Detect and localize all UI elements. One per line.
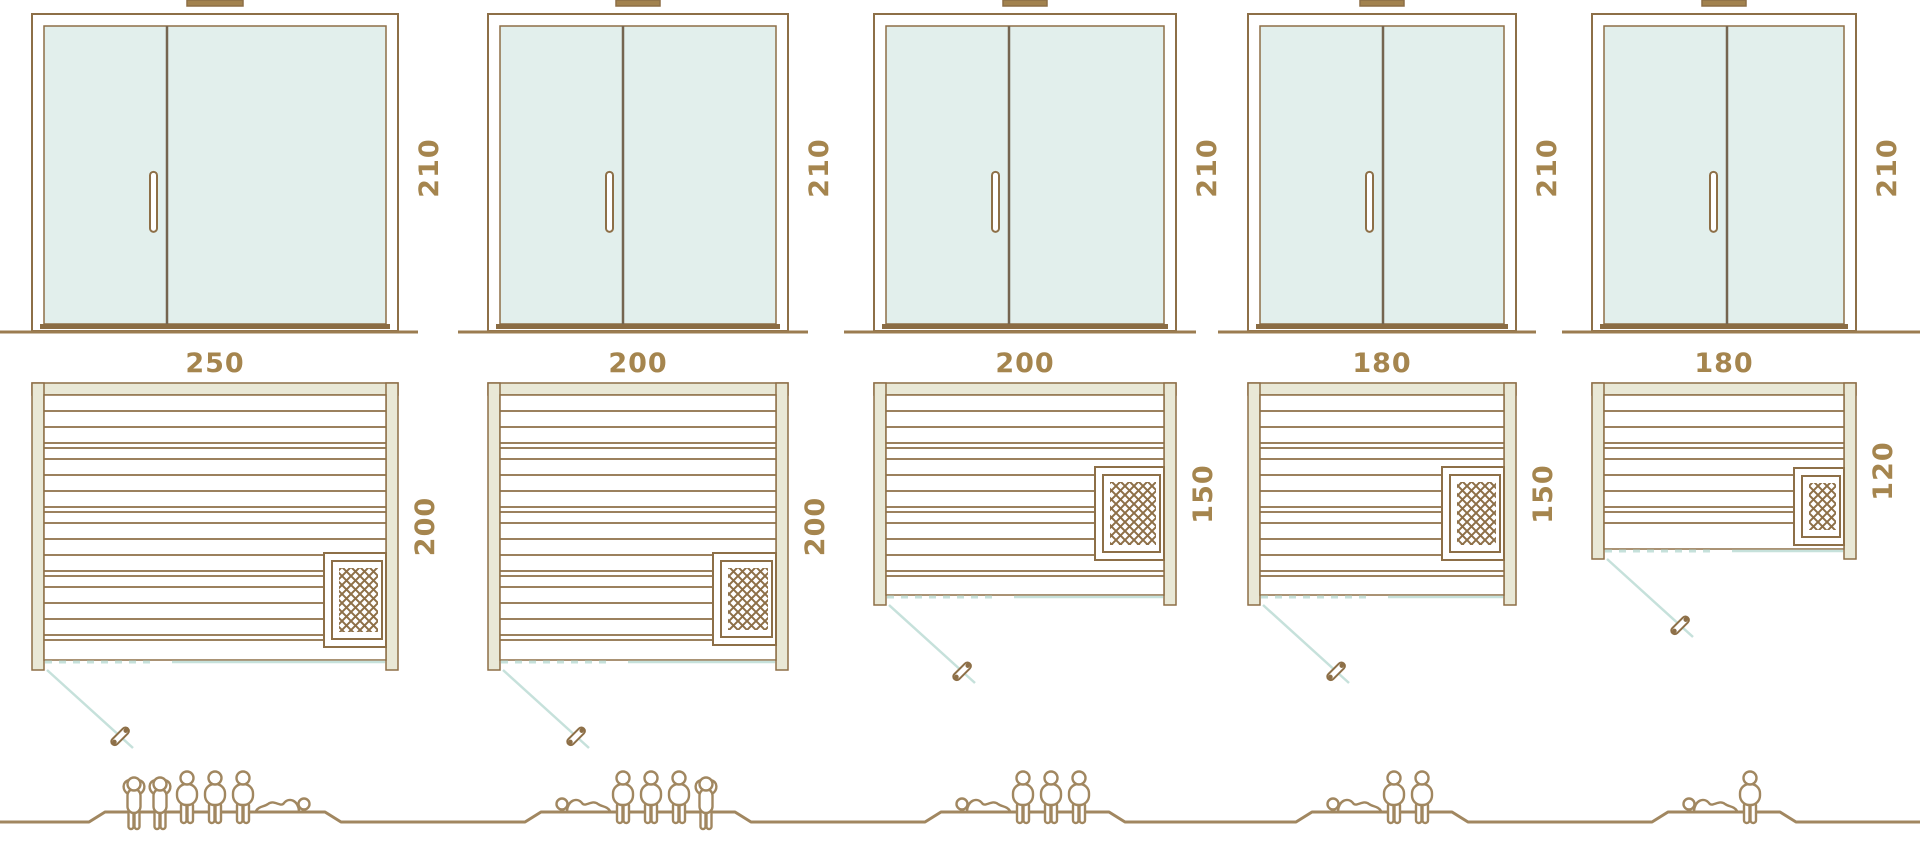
heater-icon — [713, 553, 776, 645]
plan-depth-dimension: 200 — [800, 497, 831, 556]
sauna-200x200-floor-plan — [488, 383, 788, 748]
people-ground-line — [0, 812, 1920, 822]
glass-door-panels — [1604, 26, 1844, 324]
door-threshold — [40, 324, 390, 329]
plan-left-wall — [488, 383, 500, 670]
plan-width-dimension: 180 — [1694, 348, 1753, 379]
roof-cap-icon — [187, 0, 243, 6]
glass-door-panels — [44, 26, 386, 324]
sauna-180x150-floor-plan — [1248, 383, 1516, 683]
plan-right-wall — [1164, 383, 1176, 605]
sauna-200x150-column: 210200150 — [844, 0, 1223, 683]
plan-right-wall — [386, 383, 398, 670]
plan-depth-dimension: 200 — [410, 497, 441, 556]
sauna-200x150-floor-plan — [874, 383, 1176, 683]
sauna-200x200-capacity-figures — [557, 772, 717, 830]
door-threshold — [1256, 324, 1508, 329]
door-handle-icon — [1710, 172, 1717, 232]
sauna-180x150-door-elevation — [1248, 0, 1516, 331]
sauna-180x150-capacity-figures — [1328, 772, 1433, 824]
plan-depth-dimension: 150 — [1528, 464, 1559, 523]
heater-icon — [1095, 467, 1164, 560]
sauna-180x150-column: 210180150 — [1218, 0, 1563, 683]
door-handle-icon — [606, 172, 613, 232]
plan-left-wall — [32, 383, 44, 670]
elevation-height-dimension: 210 — [1872, 138, 1903, 197]
plan-width-dimension: 180 — [1352, 348, 1411, 379]
sauna-250x200-capacity-figures — [124, 772, 310, 830]
door-handle-icon — [1366, 172, 1373, 232]
sauna-180x120-column: 210180120 — [1562, 0, 1920, 637]
plan-left-wall — [1248, 383, 1260, 605]
door-threshold — [496, 324, 780, 329]
plan-width-dimension: 200 — [608, 348, 667, 379]
heater-icon — [324, 553, 386, 647]
door-handle-icon — [992, 172, 999, 232]
heater-icon — [1794, 468, 1844, 545]
plan-left-wall — [874, 383, 886, 605]
sauna-200x200-door-elevation — [488, 0, 788, 331]
sauna-250x200-floor-plan — [32, 383, 398, 748]
door-threshold — [882, 324, 1168, 329]
roof-cap-icon — [1360, 0, 1404, 6]
plan-top-wall — [1248, 383, 1516, 395]
plan-width-dimension: 250 — [185, 348, 244, 379]
plan-width-dimension: 200 — [995, 348, 1054, 379]
glass-door-panels — [500, 26, 776, 324]
plan-depth-dimension: 120 — [1868, 441, 1899, 500]
plan-right-wall — [776, 383, 788, 670]
plan-right-wall — [1504, 383, 1516, 605]
plan-top-wall — [32, 383, 398, 395]
elevation-height-dimension: 210 — [804, 138, 835, 197]
plan-top-wall — [874, 383, 1176, 395]
door-handle-icon — [150, 172, 157, 232]
plan-right-wall — [1844, 383, 1856, 559]
sauna-180x120-door-elevation — [1592, 0, 1856, 331]
roof-cap-icon — [616, 0, 660, 6]
sauna-200x200-column: 210200200 — [458, 0, 835, 748]
glass-door-panels — [886, 26, 1164, 324]
plan-top-wall — [1592, 383, 1856, 395]
door-threshold — [1600, 324, 1848, 329]
roof-cap-icon — [1003, 0, 1047, 6]
elevation-height-dimension: 210 — [1192, 138, 1223, 197]
sauna-180x120-floor-plan — [1592, 383, 1856, 637]
sauna-200x150-capacity-figures — [957, 772, 1090, 824]
plan-left-wall — [1592, 383, 1604, 559]
diagram-svg: 2102502002102002002102001502101801502101… — [0, 0, 1920, 856]
sauna-250x200-door-elevation — [32, 0, 398, 331]
elevation-height-dimension: 210 — [414, 138, 445, 197]
plan-depth-dimension: 150 — [1188, 464, 1219, 523]
plan-top-wall — [488, 383, 788, 395]
sauna-sizes-diagram: 2102502002102002002102001502101801502101… — [0, 0, 1920, 856]
roof-cap-icon — [1702, 0, 1746, 6]
sauna-250x200-column: 210250200 — [0, 0, 445, 748]
sauna-180x120-capacity-figures — [1684, 772, 1761, 824]
sauna-200x150-door-elevation — [874, 0, 1176, 331]
heater-icon — [1442, 467, 1504, 560]
elevation-height-dimension: 210 — [1532, 138, 1563, 197]
